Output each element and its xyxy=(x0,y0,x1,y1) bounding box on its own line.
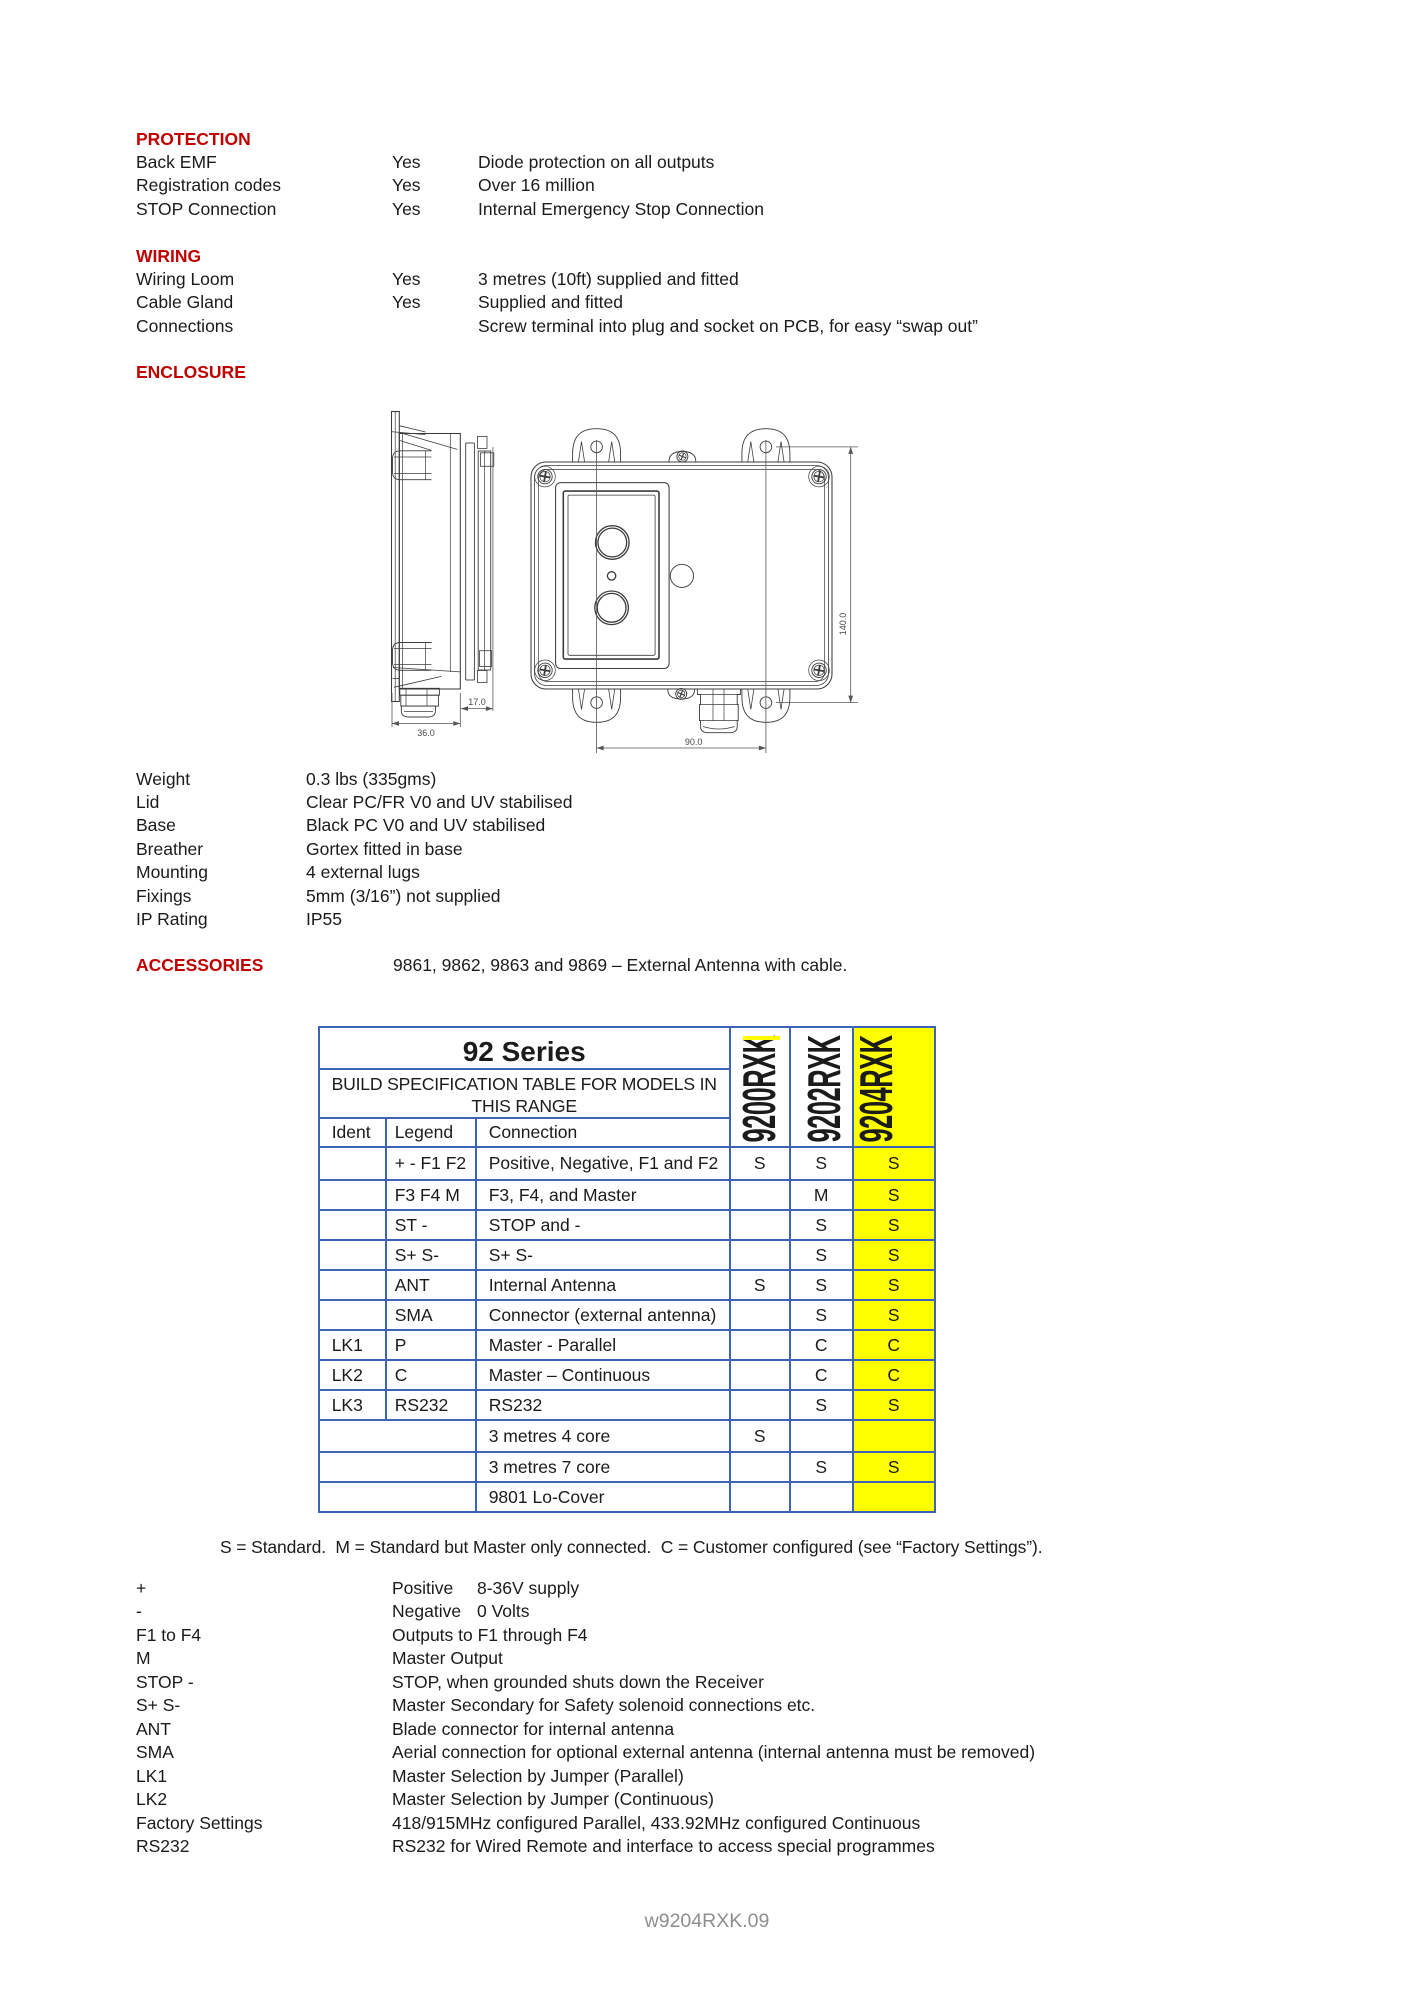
svg-text:140.0: 140.0 xyxy=(838,613,848,636)
svg-text:90.0: 90.0 xyxy=(685,737,703,747)
svg-text:36.0: 36.0 xyxy=(417,728,435,738)
svg-text:17.0: 17.0 xyxy=(468,697,486,707)
